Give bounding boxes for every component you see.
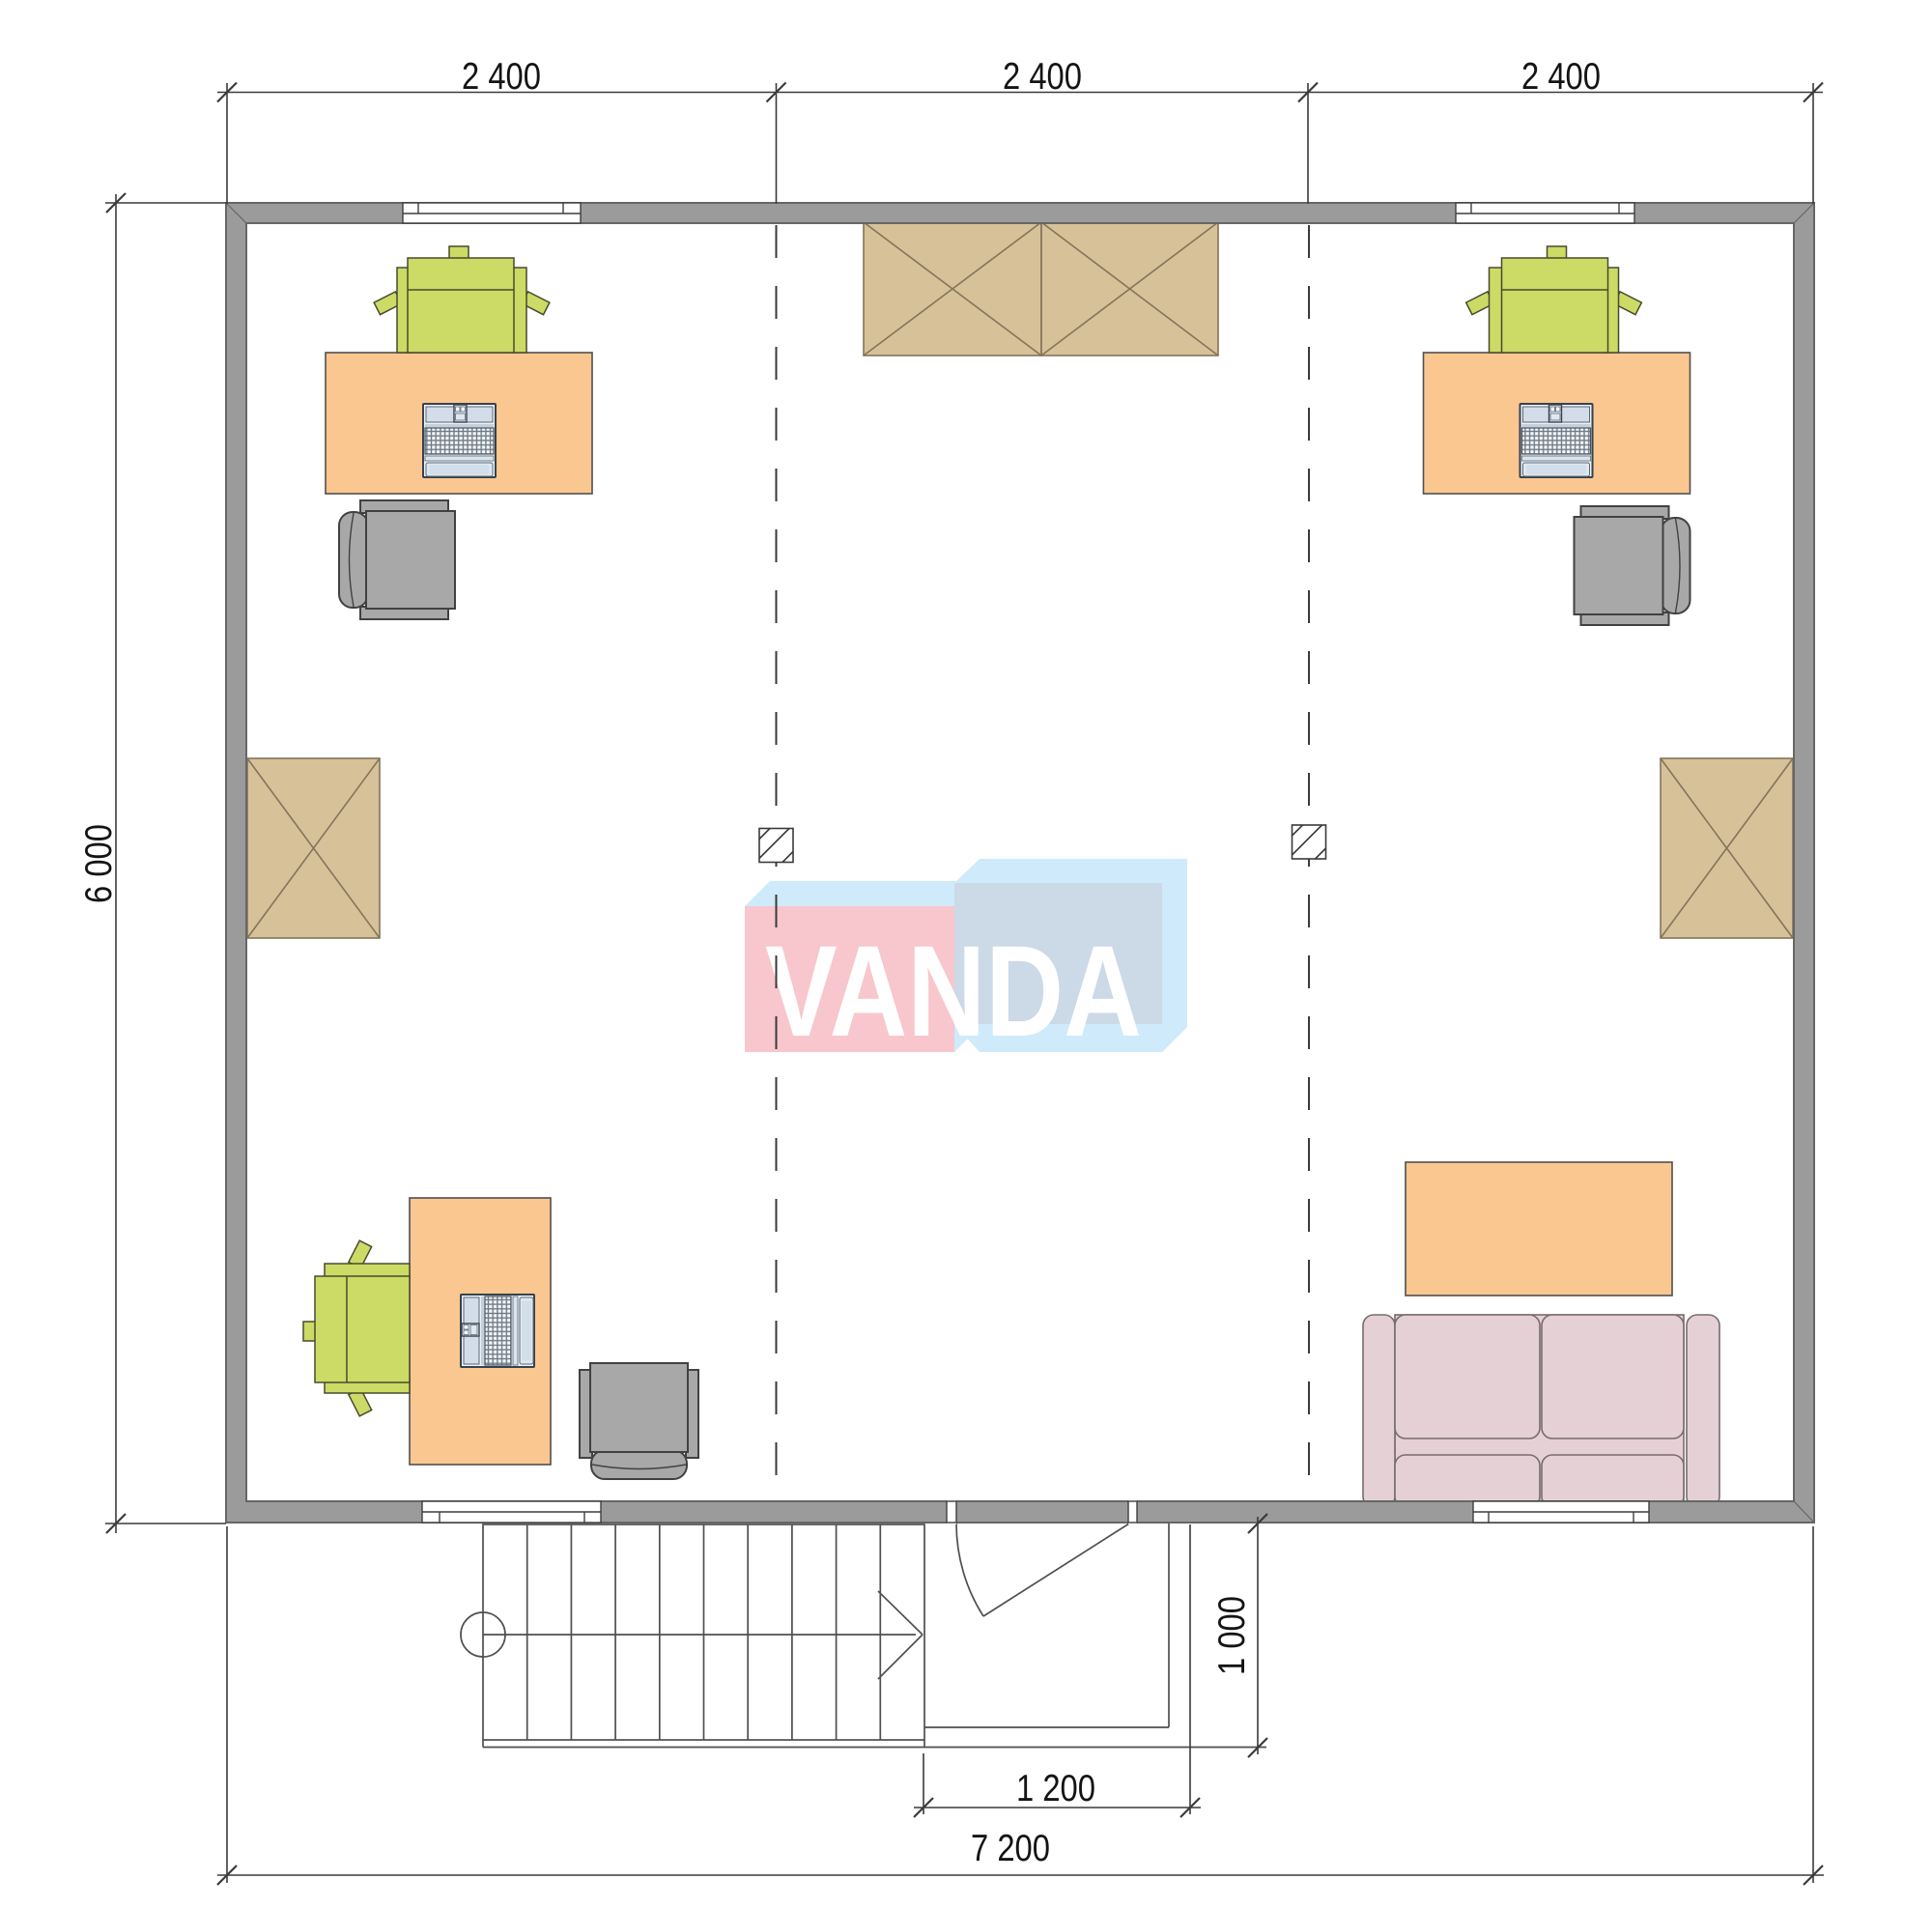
svg-text:6 000: 6 000 (78, 824, 120, 903)
svg-text:1 000: 1 000 (1211, 1596, 1253, 1675)
svg-text:2 400: 2 400 (1521, 56, 1601, 98)
svg-text:7 200: 7 200 (971, 1828, 1050, 1869)
svg-text:2 400: 2 400 (1003, 56, 1082, 98)
svg-text:VANDA: VANDA (765, 920, 1142, 1064)
svg-text:2 400: 2 400 (462, 56, 541, 98)
svg-text:1 200: 1 200 (1016, 1768, 1095, 1809)
